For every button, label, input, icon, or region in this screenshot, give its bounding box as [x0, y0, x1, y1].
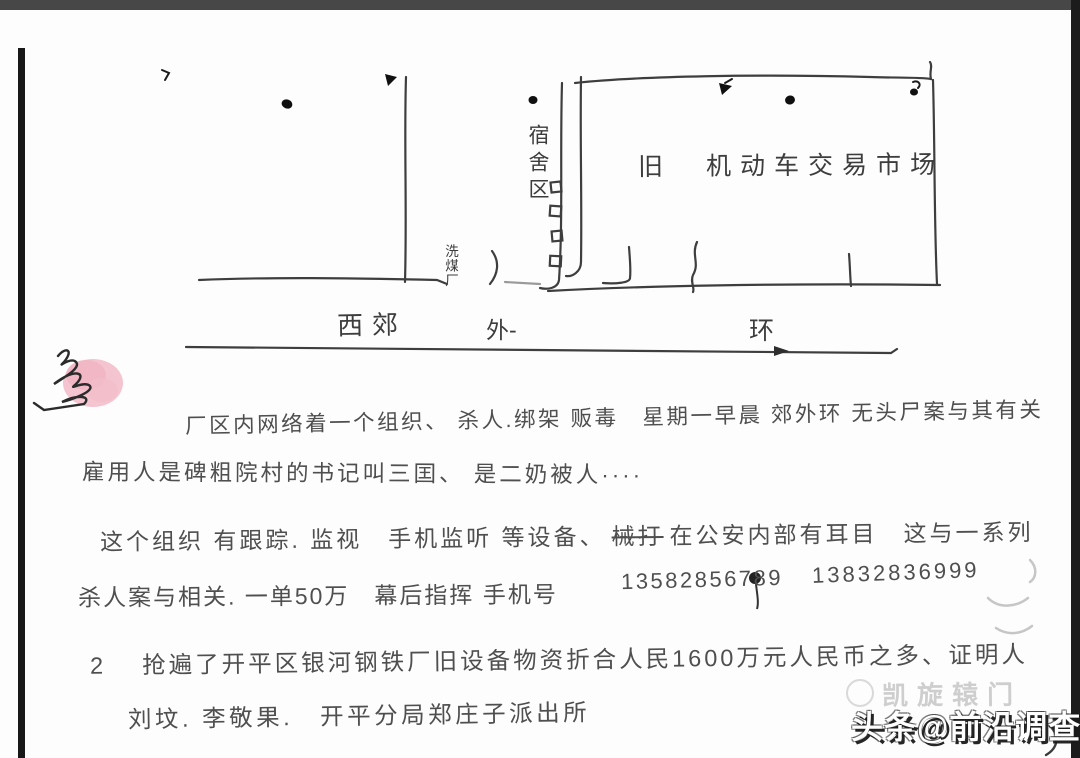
road-arrowhead	[774, 346, 789, 356]
market-label: 旧 机动车交易市场	[638, 145, 944, 183]
road-label-east: 环	[749, 311, 774, 347]
scan-left-edge-line	[18, 48, 25, 758]
small-pen-marks	[162, 70, 920, 88]
note-line-1: 厂区内网络着一个组织、 杀人.绑架 贩毒 星期一早晨 郊外环 无头尸案与其有关	[185, 393, 1044, 440]
dormitory-area-label: 宿舍区	[522, 124, 552, 205]
pencil-smudges	[988, 560, 1035, 633]
scan-top-band	[0, 0, 1080, 10]
note-line-4: 杀人案与相关. 一单50万 幕后指挥 手机号	[78, 575, 558, 612]
toutiao-watermark: 头条@前沿调查	[851, 702, 1080, 748]
ink-specks	[280, 74, 918, 110]
note-line-6: 刘坟. 李敬果. 开平分局郑庄子派出所	[128, 693, 591, 734]
note-line-3-struck-word: 械打	[611, 523, 663, 550]
coal-plant-label: 洗煤厂	[440, 244, 460, 288]
note-line-5: 2 抢遍了开平区银河钢铁厂旧设备物资折合人民1600万元人民币之多、证明人	[90, 635, 1028, 680]
signature-scribble	[34, 350, 90, 410]
note-line-2: 雇用人是碑粗院村的书记叫三囯、 是二奶被人····	[82, 455, 643, 490]
road-label-west: 西郊	[337, 304, 408, 342]
phone-number-1: 13582856789	[621, 565, 784, 595]
red-fingerprint	[63, 359, 123, 407]
road-label-middle: 外-	[486, 311, 517, 345]
scanned-document-page: 宿舍区 旧 机动车交易市场 洗煤厂 西郊 外- 环 厂区内网络着一个组织、 杀人…	[0, 0, 1080, 758]
note-line-3-post: 在公安内部有耳目 这与一系列	[669, 519, 1033, 549]
note-line-3: 这个组织 有跟踪. 监视 手机监听 等设备、械打在公安内部有耳目 这与一系列	[100, 513, 1034, 557]
note-line-3-pre: 这个组织 有跟踪. 监视 手机监听 等设备、	[100, 524, 606, 555]
map-strokes	[186, 62, 940, 353]
phone-number-2: 13832836999	[812, 557, 980, 589]
scan-right-band	[1071, 0, 1080, 758]
